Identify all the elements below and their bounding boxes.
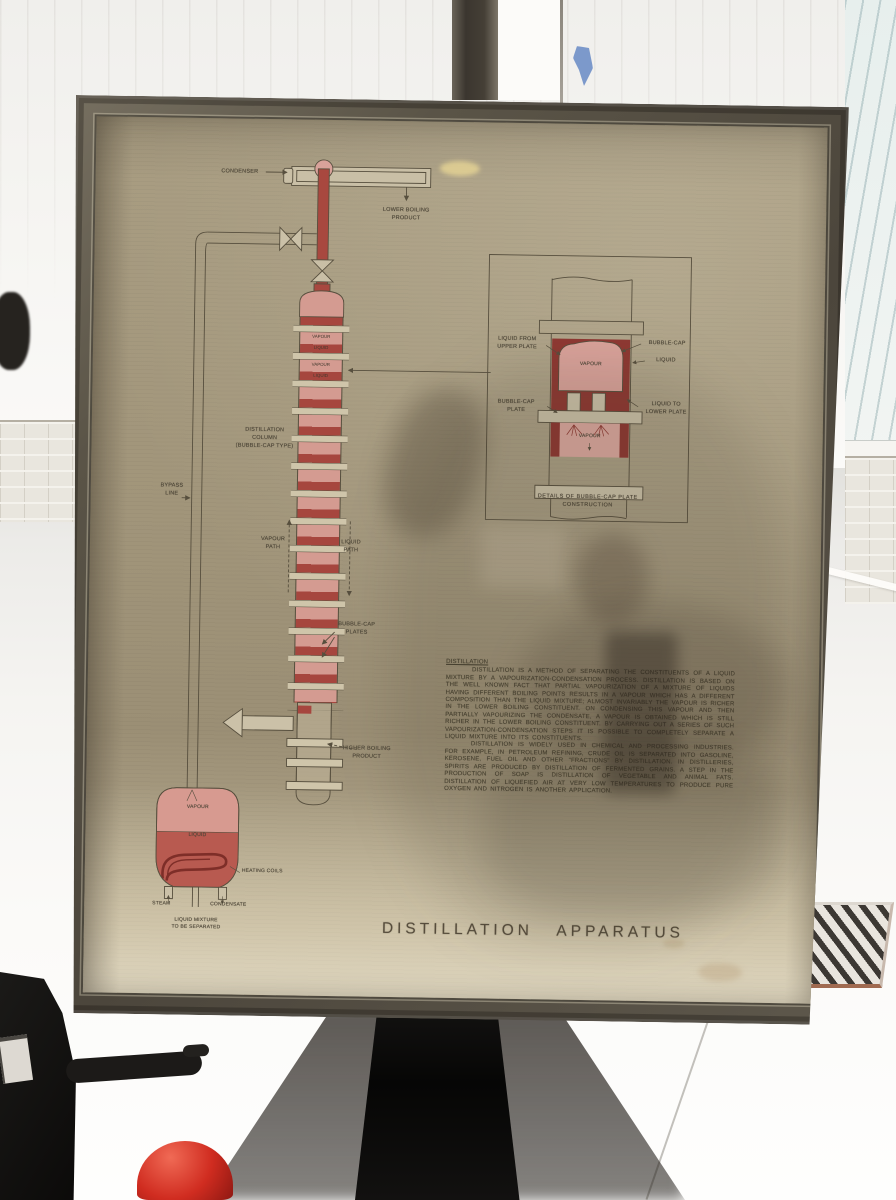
- label-flask-liquid: LIQUID: [174, 832, 220, 840]
- window-light-strip: [498, 0, 560, 100]
- diagram-linework: [62, 95, 849, 1025]
- paper-stain: [698, 963, 742, 982]
- column-band-label: VAPOUR: [299, 362, 343, 368]
- label-liquid-from-upper-plate: LIQUID FROM UPPER PLATE: [490, 335, 544, 352]
- label-flask-vapour: VAPOUR: [175, 804, 221, 812]
- label-bubble-cap-plate: BUBBLE-CAP PLATE: [489, 398, 543, 415]
- column-band-label: LIQUID: [299, 373, 343, 379]
- poster-frame: VAPOUR LIQUID VAPOUR LIQUID CONDENSER LO…: [62, 95, 849, 1025]
- description-paragraph-2: DISTILLATION IS WIDELY USED IN CHEMICAL …: [444, 741, 734, 797]
- label-condensate: CONDENSATE: [201, 901, 255, 909]
- window-mullion: [452, 0, 498, 100]
- label-steam: STEAM: [141, 900, 181, 908]
- description-text-block: DISTILLATION DISTILLATION IS A METHOD OF…: [444, 659, 735, 798]
- label-heating-coils: HEATING COILS: [242, 868, 298, 876]
- label-liquid: LIQUID: [646, 356, 686, 365]
- label-vapour-path: VAPOUR PATH: [251, 535, 295, 552]
- label-lower-boiling-product: LOWER BOILING PRODUCT: [370, 206, 442, 223]
- label-inset-caption: DETAILS OF BUBBLE-CAP PLATE CONSTRUCTION: [502, 492, 674, 511]
- wall-fascia-right: [845, 440, 896, 456]
- description-paragraph-1: DISTILLATION IS A METHOD OF SEPARATING T…: [445, 667, 735, 746]
- label-bubble-cap-plates: BUBBLE-CAP PLATES: [328, 620, 386, 637]
- glass-glare-spot: [440, 161, 480, 177]
- label-inset-vapour-bottom: VAPOUR: [566, 433, 614, 441]
- label-bubble-cap: BUBBLE-CAP: [642, 339, 692, 348]
- brick-wall-left: [0, 420, 82, 522]
- corrugated-wall-right: [845, 0, 896, 468]
- paper-stain: [663, 938, 685, 948]
- poster-paper: VAPOUR LIQUID VAPOUR LIQUID CONDENSER LO…: [83, 116, 828, 1003]
- label-liquid-path: LIQUID PATH: [329, 538, 373, 555]
- label-liquid-mixture: LIQUID MIXTURE TO BE SEPARATED: [163, 916, 229, 931]
- photo-of-framed-distillation-poster: VAPOUR LIQUID VAPOUR LIQUID CONDENSER LO…: [0, 0, 896, 1200]
- column-band-label: LIQUID: [299, 345, 343, 351]
- label-distillation-column: DISTILLATION COLUMN (BUBBLE-CAP TYPE): [226, 425, 302, 450]
- dark-object-left-edge: [0, 292, 30, 370]
- label-inset-vapour-top: VAPOUR: [567, 361, 615, 369]
- label-bypass-line: BYPASS LINE: [154, 481, 190, 498]
- label-liquid-to-lower-plate: LIQUID TO LOWER PLATE: [637, 400, 695, 417]
- diagram-layer: VAPOUR LIQUID VAPOUR LIQUID CONDENSER LO…: [62, 95, 849, 1025]
- label-higher-boiling-product: HIGHER BOILING PRODUCT: [334, 744, 400, 761]
- label-condenser: CONDENSER: [215, 167, 265, 176]
- column-band-label: VAPOUR: [299, 334, 343, 340]
